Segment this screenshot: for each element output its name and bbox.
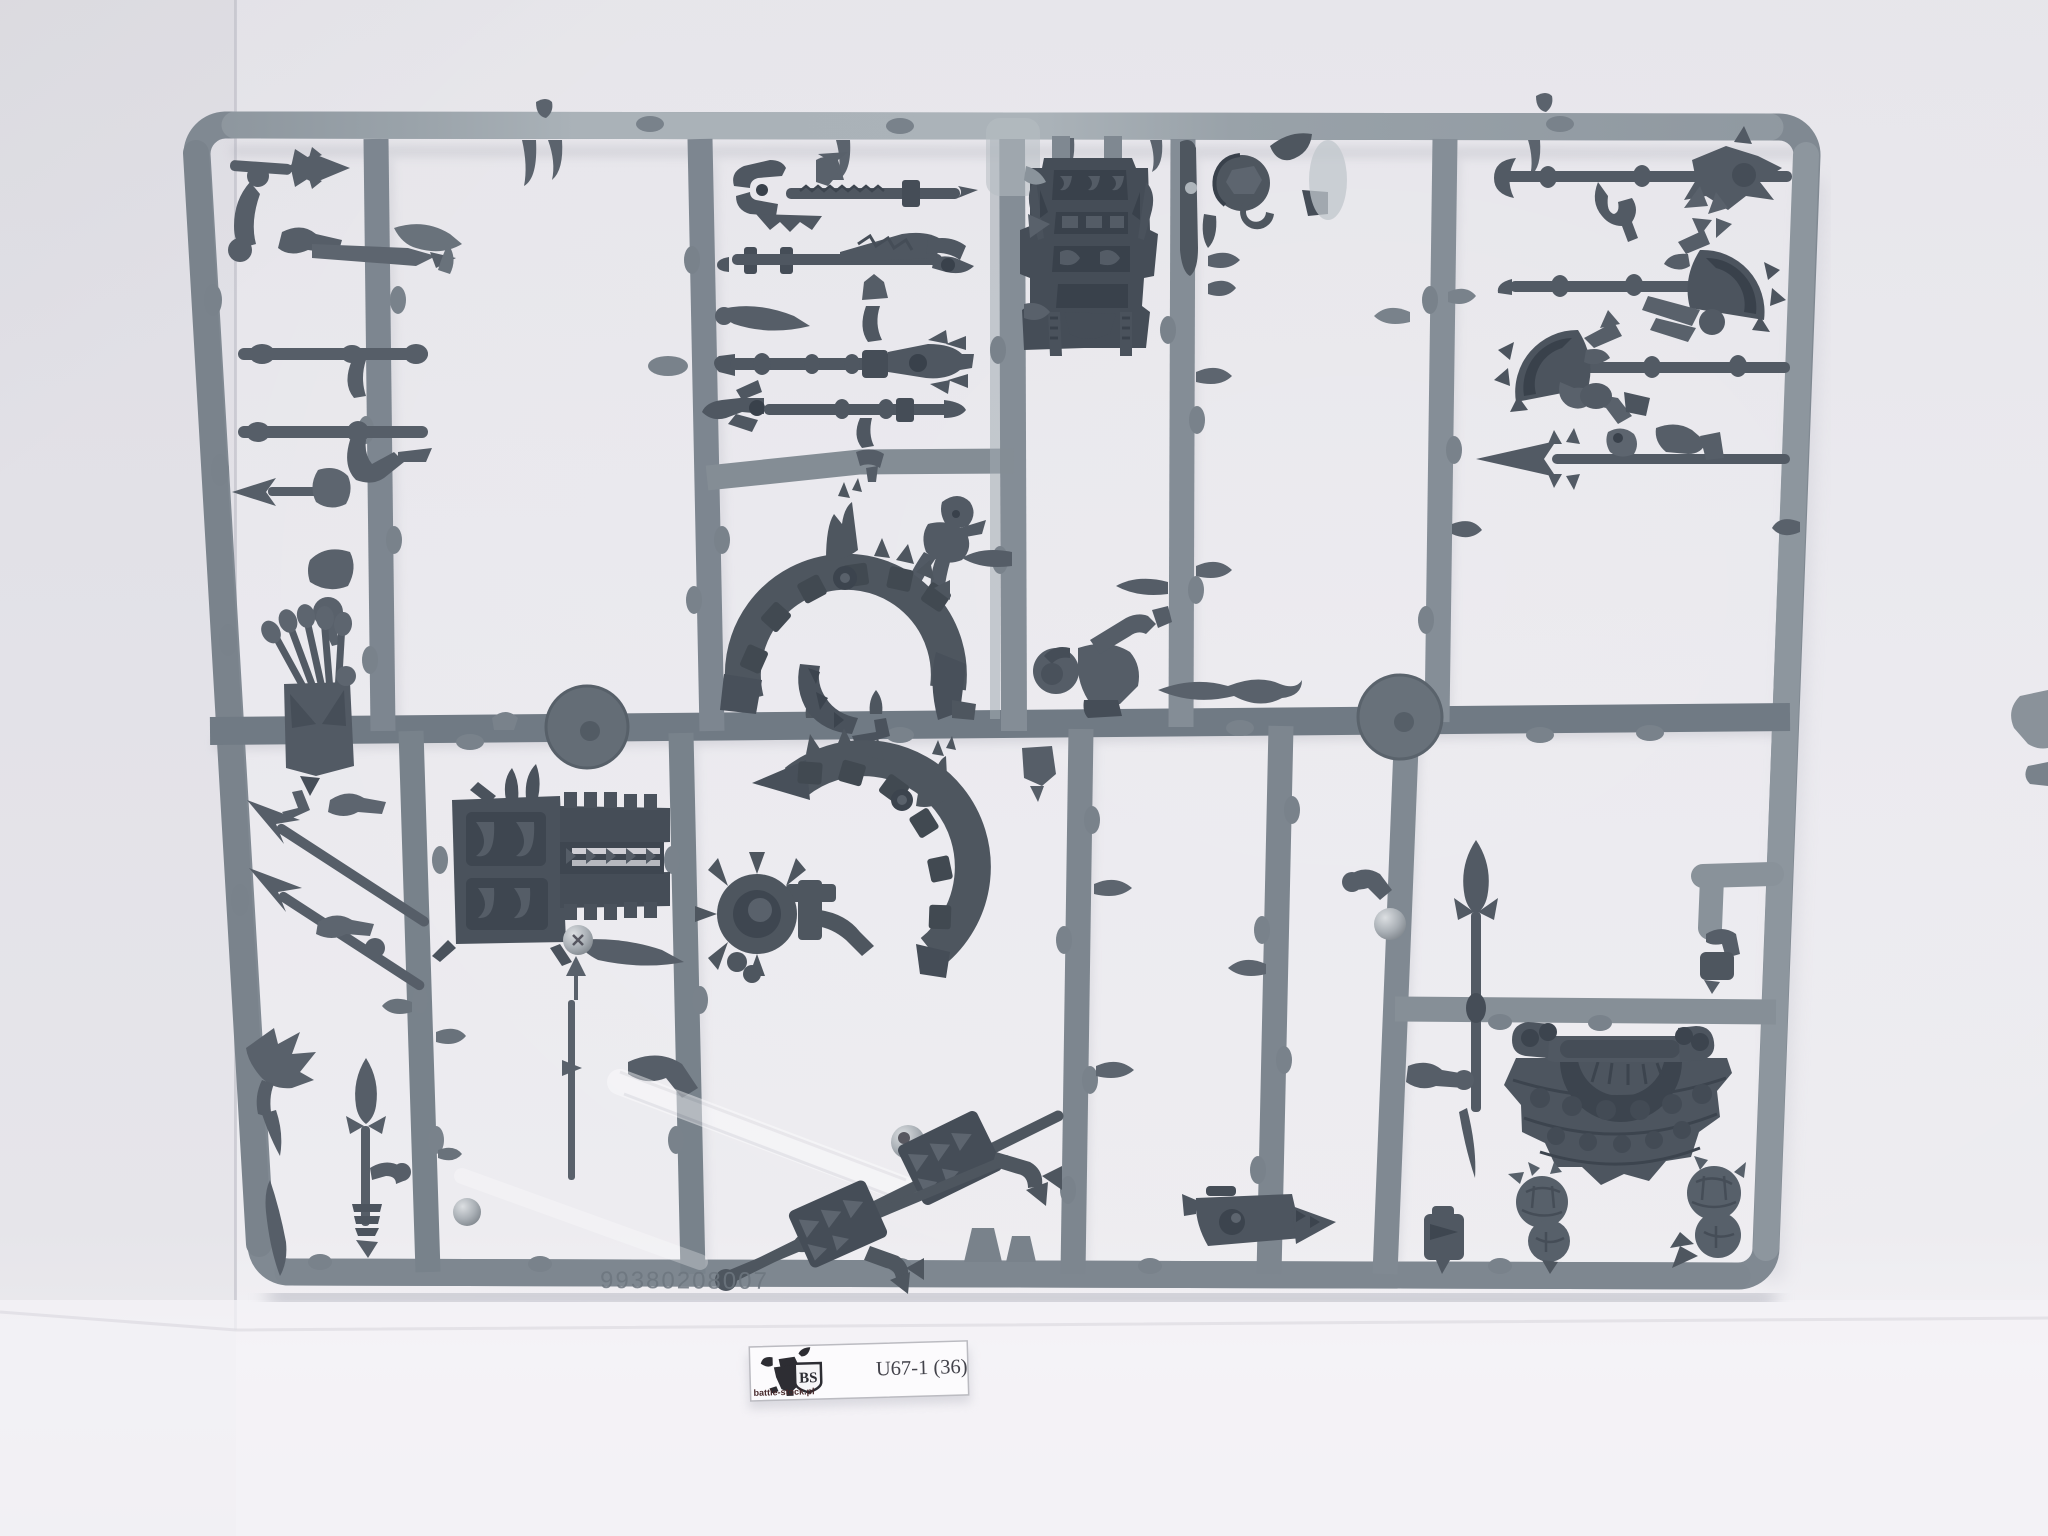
svg-text:U67-1 (36): U67-1 (36) xyxy=(876,1356,968,1381)
svg-text:99380208007: 99380208007 xyxy=(600,1267,769,1295)
svg-text:battle-stock.pl: battle-stock.pl xyxy=(753,1386,814,1398)
svg-text:BS: BS xyxy=(799,1370,818,1387)
